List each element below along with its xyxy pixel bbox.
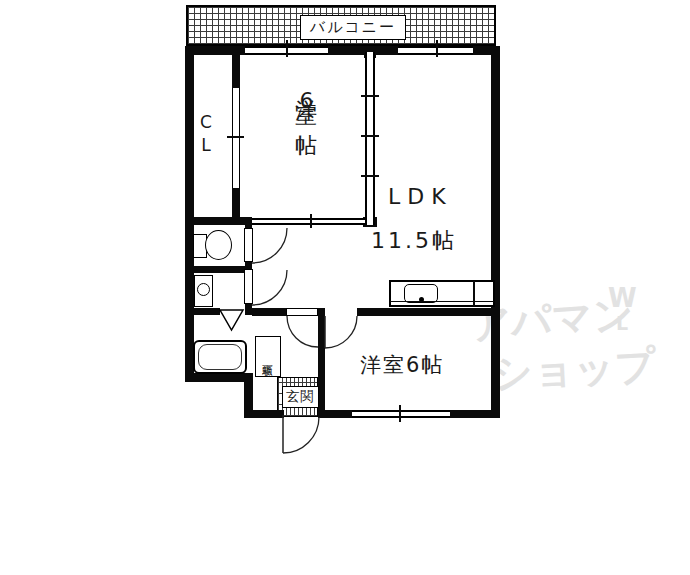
watermark-line2: ショップ xyxy=(491,338,657,401)
ldk-label: LDK xyxy=(388,184,453,209)
sliding-opening-bedroom-north xyxy=(252,218,366,225)
closet-door-tick xyxy=(227,136,244,138)
shoe-cabinet: 下駄箱 xyxy=(255,336,281,377)
partition-tick-1 xyxy=(361,95,379,97)
hall-door-leaf xyxy=(286,308,318,316)
wall-left xyxy=(185,46,194,382)
bathtub-inner xyxy=(198,344,242,370)
wall-bottom-genkan xyxy=(244,410,284,418)
door-swings-layer xyxy=(0,0,690,575)
entrance-label-box: 玄関 xyxy=(282,386,319,408)
wall-ldk-bottom-a xyxy=(252,308,286,316)
wall-washroom-bottom xyxy=(185,308,220,315)
floorplan-canvas: アパマン W L ショップ バルコニー xyxy=(0,0,690,575)
wall-bedroom-north-bottom xyxy=(185,217,252,225)
balcony-label: バルコニー xyxy=(310,18,396,37)
entrance-label: 玄関 xyxy=(286,388,315,406)
toilet-door-leaf xyxy=(244,228,253,262)
closet-label: CL xyxy=(196,112,216,158)
wall-ldk-bottom-b xyxy=(357,308,500,316)
wall-right xyxy=(491,46,500,418)
wall-bottom-bath xyxy=(185,373,253,382)
window-tick-3 xyxy=(399,405,401,422)
wall-bedroom-south-left xyxy=(318,308,325,418)
toilet-door-arc xyxy=(252,228,287,263)
partition-tick-3 xyxy=(361,175,379,177)
closet-sliding-door xyxy=(232,88,240,188)
washroom-door-leaf xyxy=(244,269,253,304)
watermark-w-mark: W xyxy=(608,283,637,313)
wall-toilet-bottom xyxy=(185,266,245,273)
kitchen-counter-divider xyxy=(473,281,475,306)
partition-tick-2 xyxy=(361,135,379,137)
hall-door-arc xyxy=(287,316,318,347)
kitchen-counter-edge xyxy=(390,301,494,302)
window-bedroom-south xyxy=(352,410,450,418)
bedroom-south-label: 洋室6帖 xyxy=(360,351,444,379)
window-tick-1 xyxy=(286,40,288,57)
watermark-l-mark: L xyxy=(616,312,628,334)
washroom-door-arc xyxy=(252,270,287,305)
wall-top-b xyxy=(328,46,398,55)
window-tick-2 xyxy=(436,40,438,57)
entrance-door-arc xyxy=(283,417,319,453)
bedroom-south-door-arc xyxy=(325,316,357,348)
balcony-label-box: バルコニー xyxy=(300,15,406,40)
bedroom-north-label: 洋室6帖 xyxy=(291,82,321,119)
sliding-tick xyxy=(310,214,312,228)
bathroom-door-triangle-icon xyxy=(220,310,243,330)
wall-bottom-room-b xyxy=(450,410,500,418)
wall-hall-left-c xyxy=(245,303,252,315)
ldk-size-label: 11.5帖 xyxy=(371,226,457,256)
toilet-icon xyxy=(205,230,232,260)
washing-machine-drum xyxy=(197,283,210,296)
partition-bedroom-ldk xyxy=(365,52,375,225)
